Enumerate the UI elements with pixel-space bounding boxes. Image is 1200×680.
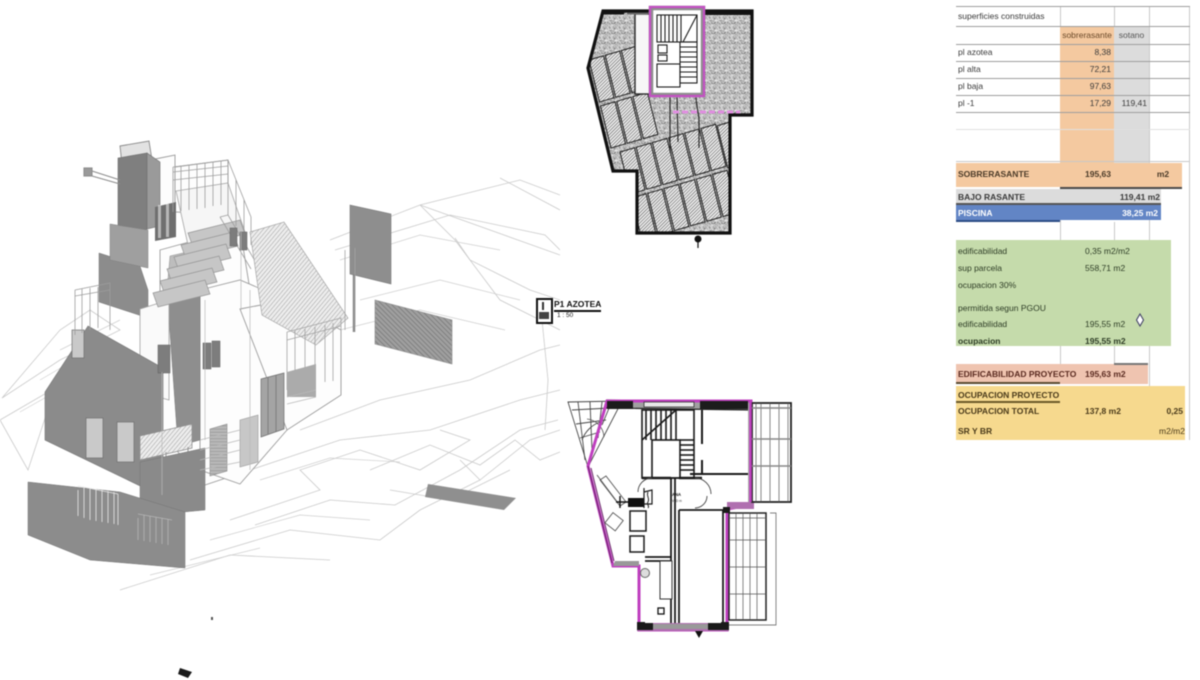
svg-text:VLD m: VLD m <box>672 499 682 503</box>
svg-text:ANA: ANA <box>672 492 681 497</box>
